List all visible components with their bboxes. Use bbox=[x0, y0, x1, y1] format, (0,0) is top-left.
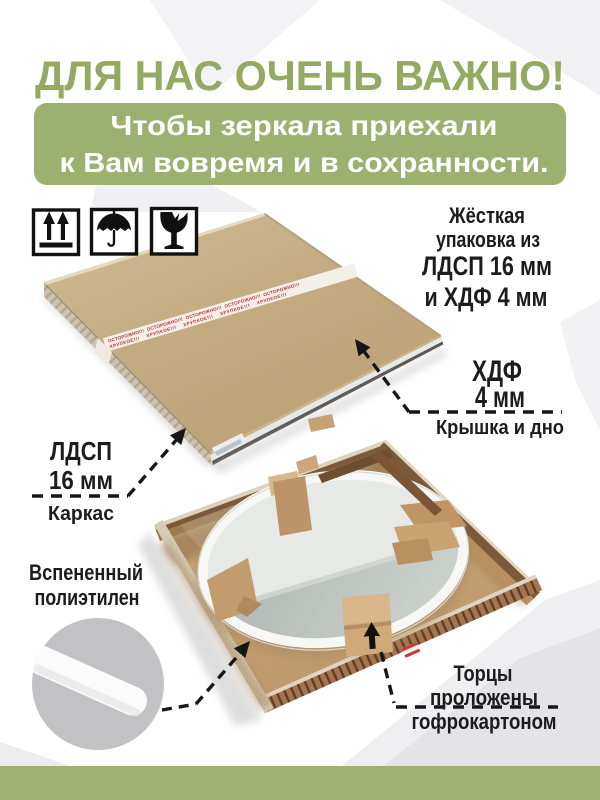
svg-text:Чтобы зеркала приехали: Чтобы зеркала приехали bbox=[111, 110, 498, 141]
svg-text:Крышка и дно: Крышка и дно bbox=[436, 417, 564, 439]
svg-text:Торцы: Торцы bbox=[454, 661, 513, 686]
svg-text:Жёсткая: Жёсткая bbox=[448, 203, 525, 228]
svg-text:ДЛЯ НАС ОЧЕНЬ ВАЖНО!: ДЛЯ НАС ОЧЕНЬ ВАЖНО! bbox=[35, 52, 565, 99]
svg-text:Каркас: Каркас bbox=[48, 503, 114, 525]
svg-text:полиэтилен: полиэтилен bbox=[35, 585, 140, 610]
svg-text:Вспененный: Вспененный bbox=[29, 560, 143, 585]
svg-text:16 мм: 16 мм bbox=[49, 465, 113, 495]
svg-text:гофрокартоном: гофрокартоном bbox=[412, 709, 557, 734]
svg-text:4 мм: 4 мм bbox=[475, 381, 525, 414]
svg-text:проложены: проложены bbox=[430, 685, 538, 710]
svg-text:ЛДСП 16 мм: ЛДСП 16 мм bbox=[422, 251, 552, 281]
svg-text:ЛДСП: ЛДСП bbox=[50, 436, 112, 466]
svg-text:к Вам вовремя и в сохранности.: к Вам вовремя и в сохранности. bbox=[60, 147, 549, 178]
svg-text:и ХДФ 4 мм: и ХДФ 4 мм bbox=[425, 282, 548, 312]
svg-text:упаковка из: упаковка из bbox=[436, 227, 540, 252]
